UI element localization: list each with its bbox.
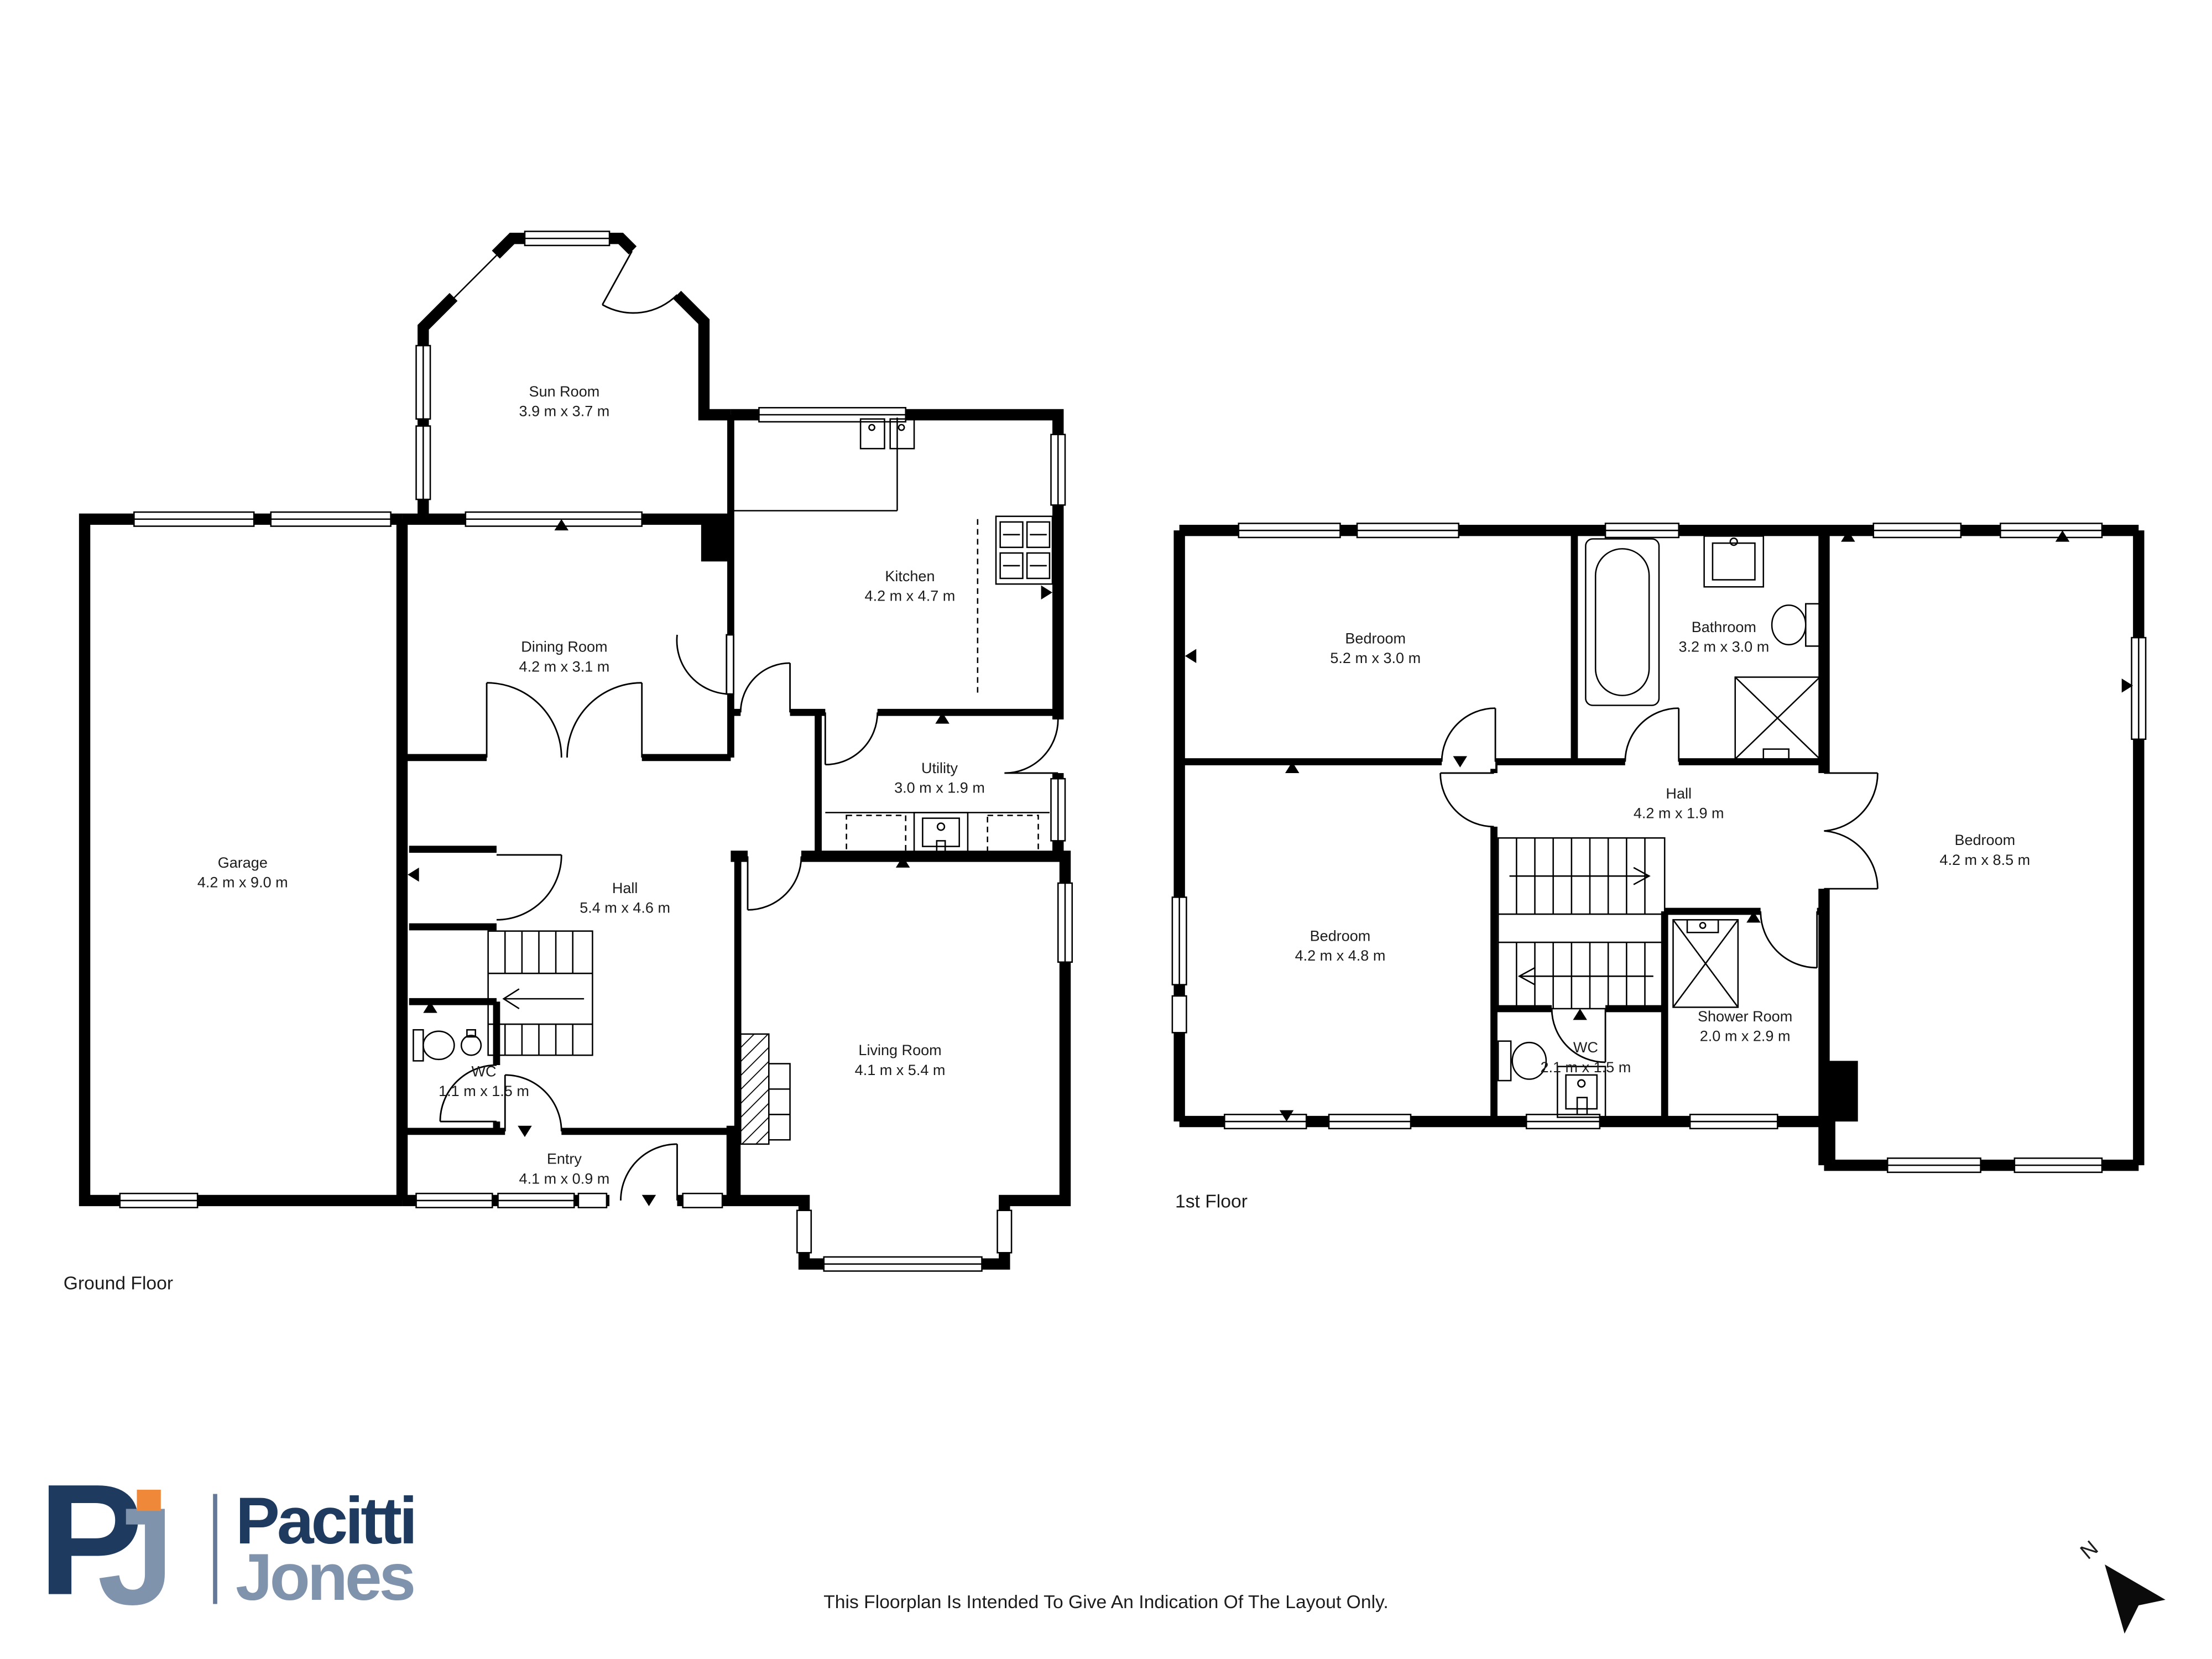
fireplace bbox=[740, 1034, 790, 1144]
wc-fixtures-ground bbox=[413, 1030, 481, 1061]
logo-wordmark: Pacitti Jones bbox=[236, 1493, 415, 1605]
room-dims-hall-first: 4.2 m x 1.9 m bbox=[1634, 805, 1724, 822]
stairs-ground bbox=[488, 931, 593, 1055]
room-dims-wc-first: 2.1 m x 1.5 m bbox=[1540, 1059, 1631, 1076]
ground-floor-label: Ground Floor bbox=[64, 1274, 173, 1294]
room-label-utility: Utility bbox=[921, 760, 958, 776]
pacitti-jones-logo: P J Pacitti Jones bbox=[46, 1481, 415, 1617]
room-dims-bedroom-2: 4.2 m x 4.8 m bbox=[1295, 947, 1386, 964]
room-dims-bedroom-1: 5.2 m x 3.0 m bbox=[1330, 650, 1421, 666]
room-dims-bedroom-3: 4.2 m x 8.5 m bbox=[1939, 852, 2030, 868]
room-label-entry: Entry bbox=[547, 1151, 582, 1167]
room-label-dining-room: Dining Room bbox=[521, 639, 607, 655]
logo-letter-j: J bbox=[97, 1487, 174, 1625]
north-arrow-icon: N bbox=[2076, 1536, 2166, 1634]
room-label-wc-ground: WC bbox=[471, 1063, 496, 1079]
room-label-kitchen: Kitchen bbox=[885, 568, 935, 585]
room-label-bathroom: Bathroom bbox=[1692, 619, 1756, 635]
room-label-wc-first: WC bbox=[1573, 1039, 1598, 1056]
wall-stub bbox=[701, 525, 729, 561]
first-floor-label: 1st Floor bbox=[1175, 1192, 1248, 1212]
room-dims-utility: 3.0 m x 1.9 m bbox=[894, 780, 985, 796]
room-dims-bathroom: 3.2 m x 3.0 m bbox=[1678, 639, 1769, 655]
room-label-bedroom-1: Bedroom bbox=[1345, 630, 1406, 646]
room-dims-garage: 4.2 m x 9.0 m bbox=[197, 874, 288, 891]
room-dims-entry: 4.1 m x 0.9 m bbox=[519, 1170, 610, 1187]
pj-monogram-icon: P J bbox=[46, 1481, 190, 1617]
room-label-hall-ground: Hall bbox=[612, 880, 638, 896]
floorplan-page: Sun Room 3.9 m x 3.7 m Dining Room 4.2 m… bbox=[0, 0, 2212, 1659]
room-dims-living-room: 4.1 m x 5.4 m bbox=[855, 1062, 946, 1078]
utility-fixtures bbox=[825, 812, 1050, 855]
north-label: N bbox=[2076, 1536, 2103, 1564]
room-label-bedroom-2: Bedroom bbox=[1310, 928, 1371, 945]
room-dims-wc-ground: 1.1 m x 1.5 m bbox=[439, 1083, 529, 1099]
wall-notch bbox=[1824, 1061, 1858, 1121]
logo-divider bbox=[213, 1494, 217, 1604]
room-label-garage: Garage bbox=[218, 854, 268, 871]
logo-orange-square-icon bbox=[137, 1490, 160, 1511]
disclaimer-text: This Floorplan Is Intended To Give An In… bbox=[823, 1592, 1388, 1613]
room-label-bedroom-3: Bedroom bbox=[1954, 832, 2015, 848]
room-label-sun-room: Sun Room bbox=[529, 383, 600, 400]
room-label-living-room: Living Room bbox=[858, 1042, 941, 1058]
floorplan-drawing: Sun Room 3.9 m x 3.7 m Dining Room 4.2 m… bbox=[0, 0, 2212, 1659]
logo-word-jones: Jones bbox=[236, 1549, 415, 1605]
room-dims-dining-room: 4.2 m x 3.1 m bbox=[519, 658, 610, 675]
room-label-hall-first: Hall bbox=[1666, 785, 1692, 802]
stairs-first bbox=[1498, 838, 1665, 1009]
kitchen-fixtures bbox=[734, 418, 1053, 694]
room-dims-sun-room: 3.9 m x 3.7 m bbox=[519, 403, 610, 420]
wall-column bbox=[727, 1126, 741, 1201]
room-label-shower-room: Shower Room bbox=[1698, 1008, 1792, 1025]
ground-floor-plan: Sun Room 3.9 m x 3.7 m Dining Room 4.2 m… bbox=[64, 231, 1072, 1293]
room-dims-shower-room: 2.0 m x 2.9 m bbox=[1700, 1028, 1791, 1045]
first-floor-plan: Bedroom 5.2 m x 3.0 m Bathroom 3.2 m x 3… bbox=[1172, 523, 2146, 1212]
shower-room-fixtures bbox=[1673, 920, 1738, 1007]
room-dims-hall-ground: 5.4 m x 4.6 m bbox=[580, 900, 670, 916]
room-dims-kitchen: 4.2 m x 4.7 m bbox=[865, 588, 956, 604]
